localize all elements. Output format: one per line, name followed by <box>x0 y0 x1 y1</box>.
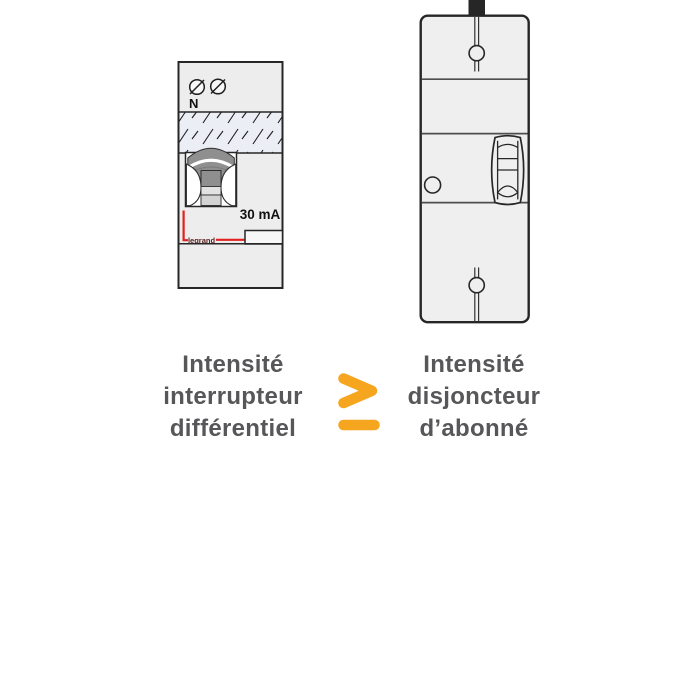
caption-main-breaker: Intensité disjoncteur d’abonné <box>349 349 599 445</box>
round-button-icon <box>425 177 441 193</box>
comparison-illustration: N 30 mA legrand <box>0 0 700 700</box>
sensitivity-label: 30 mA <box>240 207 281 222</box>
caption-line: interrupteur <box>108 381 358 413</box>
caption-differential-switch: Intensité interrupteur différentiel <box>108 349 358 445</box>
differential-switch-illustration: N 30 mA legrand <box>170 55 295 295</box>
toggle-lever-icon <box>186 148 237 206</box>
main-breaker-illustration <box>405 0 545 335</box>
neutral-terminal-label: N <box>189 96 198 111</box>
test-button-icon <box>245 231 283 245</box>
caption-line: Intensité <box>108 349 358 381</box>
caption-line: d’abonné <box>349 413 599 445</box>
rocker-switch-icon <box>492 136 524 205</box>
caption-line: Intensité <box>349 349 599 381</box>
caption-line: disjoncteur <box>349 381 599 413</box>
caption-line: différentiel <box>108 413 358 445</box>
hatched-panel <box>179 112 283 153</box>
